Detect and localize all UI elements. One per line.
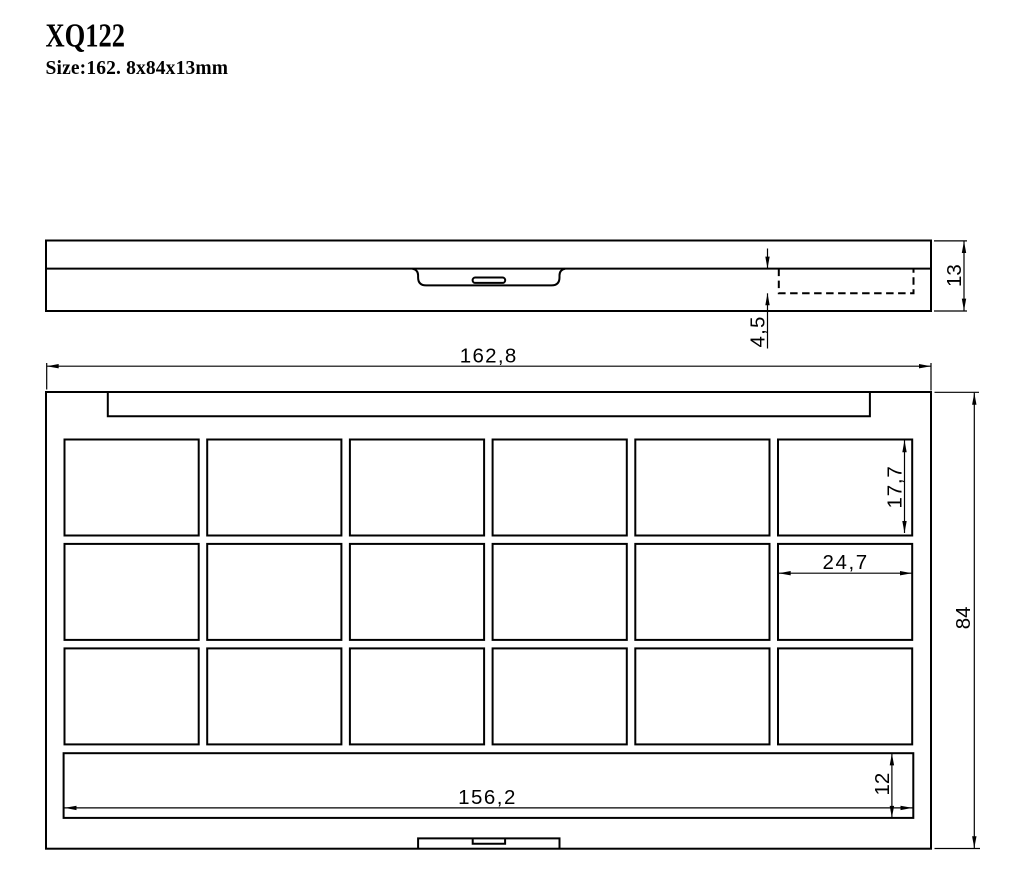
svg-text:XQ122: XQ122 [46, 16, 126, 54]
svg-text:24,7: 24,7 [822, 551, 868, 574]
svg-text:Size:162. 8x84x13mm: Size:162. 8x84x13mm [46, 58, 229, 79]
svg-text:84: 84 [952, 606, 975, 629]
svg-text:12: 12 [871, 773, 894, 796]
svg-text:156,2: 156,2 [458, 786, 517, 809]
svg-text:4,5: 4,5 [747, 315, 770, 347]
svg-text:162,8: 162,8 [460, 345, 518, 368]
svg-text:17,7: 17,7 [883, 465, 906, 508]
svg-text:13: 13 [943, 264, 966, 287]
